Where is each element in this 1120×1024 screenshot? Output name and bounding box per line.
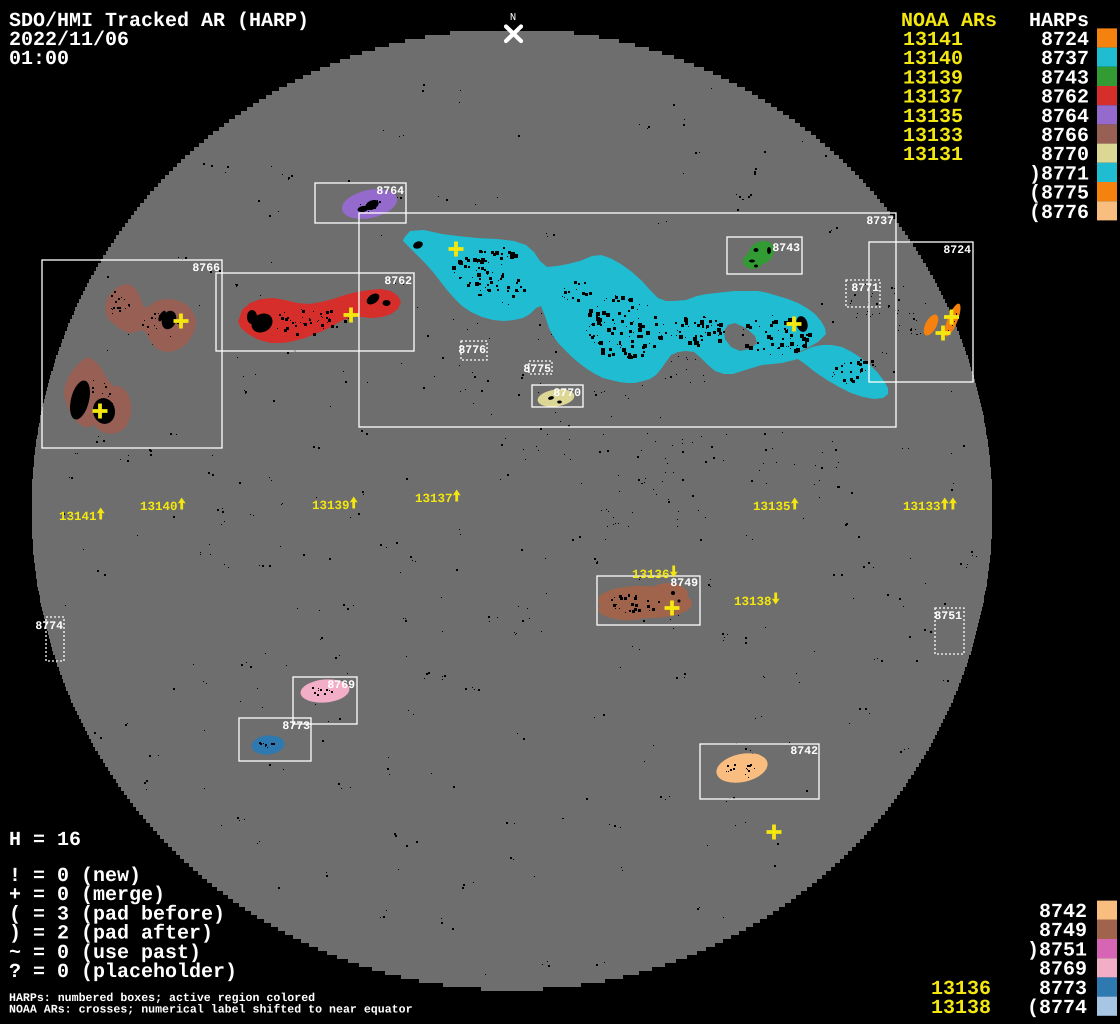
svg-text:01:00: 01:00 [9, 48, 69, 71]
svg-text:(8776: (8776 [1029, 202, 1089, 225]
svg-text:8769: 8769 [327, 679, 355, 692]
svg-text:8737: 8737 [866, 215, 894, 228]
svg-text:8762: 8762 [384, 275, 412, 288]
svg-text:8751: 8751 [934, 610, 962, 623]
svg-text:13139: 13139 [312, 499, 350, 513]
svg-text:13138: 13138 [734, 595, 772, 609]
svg-text:13141: 13141 [59, 510, 97, 524]
svg-text:H = 16: H = 16 [9, 829, 81, 852]
svg-text:NOAA ARs: crosses; numerical l: NOAA ARs: crosses; numerical label shift… [9, 1004, 413, 1017]
svg-text:13135: 13135 [753, 500, 791, 514]
svg-text:8773: 8773 [282, 720, 310, 733]
svg-text:13136: 13136 [632, 568, 670, 582]
svg-text:? = 0 (placeholder): ? = 0 (placeholder) [9, 961, 237, 984]
svg-text:13138: 13138 [931, 997, 991, 1020]
svg-text:8770: 8770 [553, 387, 581, 400]
svg-text:8743: 8743 [772, 242, 800, 255]
svg-text:8764: 8764 [376, 185, 404, 198]
svg-text:8771: 8771 [851, 282, 879, 295]
svg-text:13140: 13140 [140, 500, 178, 514]
svg-text:8749: 8749 [670, 577, 698, 590]
svg-text:8775: 8775 [523, 363, 551, 376]
svg-text:8774: 8774 [35, 620, 63, 633]
svg-text:8742: 8742 [790, 745, 818, 758]
svg-text:(8774: (8774 [1027, 997, 1087, 1020]
svg-text:8724: 8724 [943, 244, 971, 257]
svg-text:13131: 13131 [903, 144, 963, 167]
svg-text:8776: 8776 [458, 344, 486, 357]
svg-text:13137: 13137 [415, 492, 453, 506]
svg-text:13133: 13133 [903, 500, 941, 514]
svg-text:N: N [510, 12, 516, 24]
